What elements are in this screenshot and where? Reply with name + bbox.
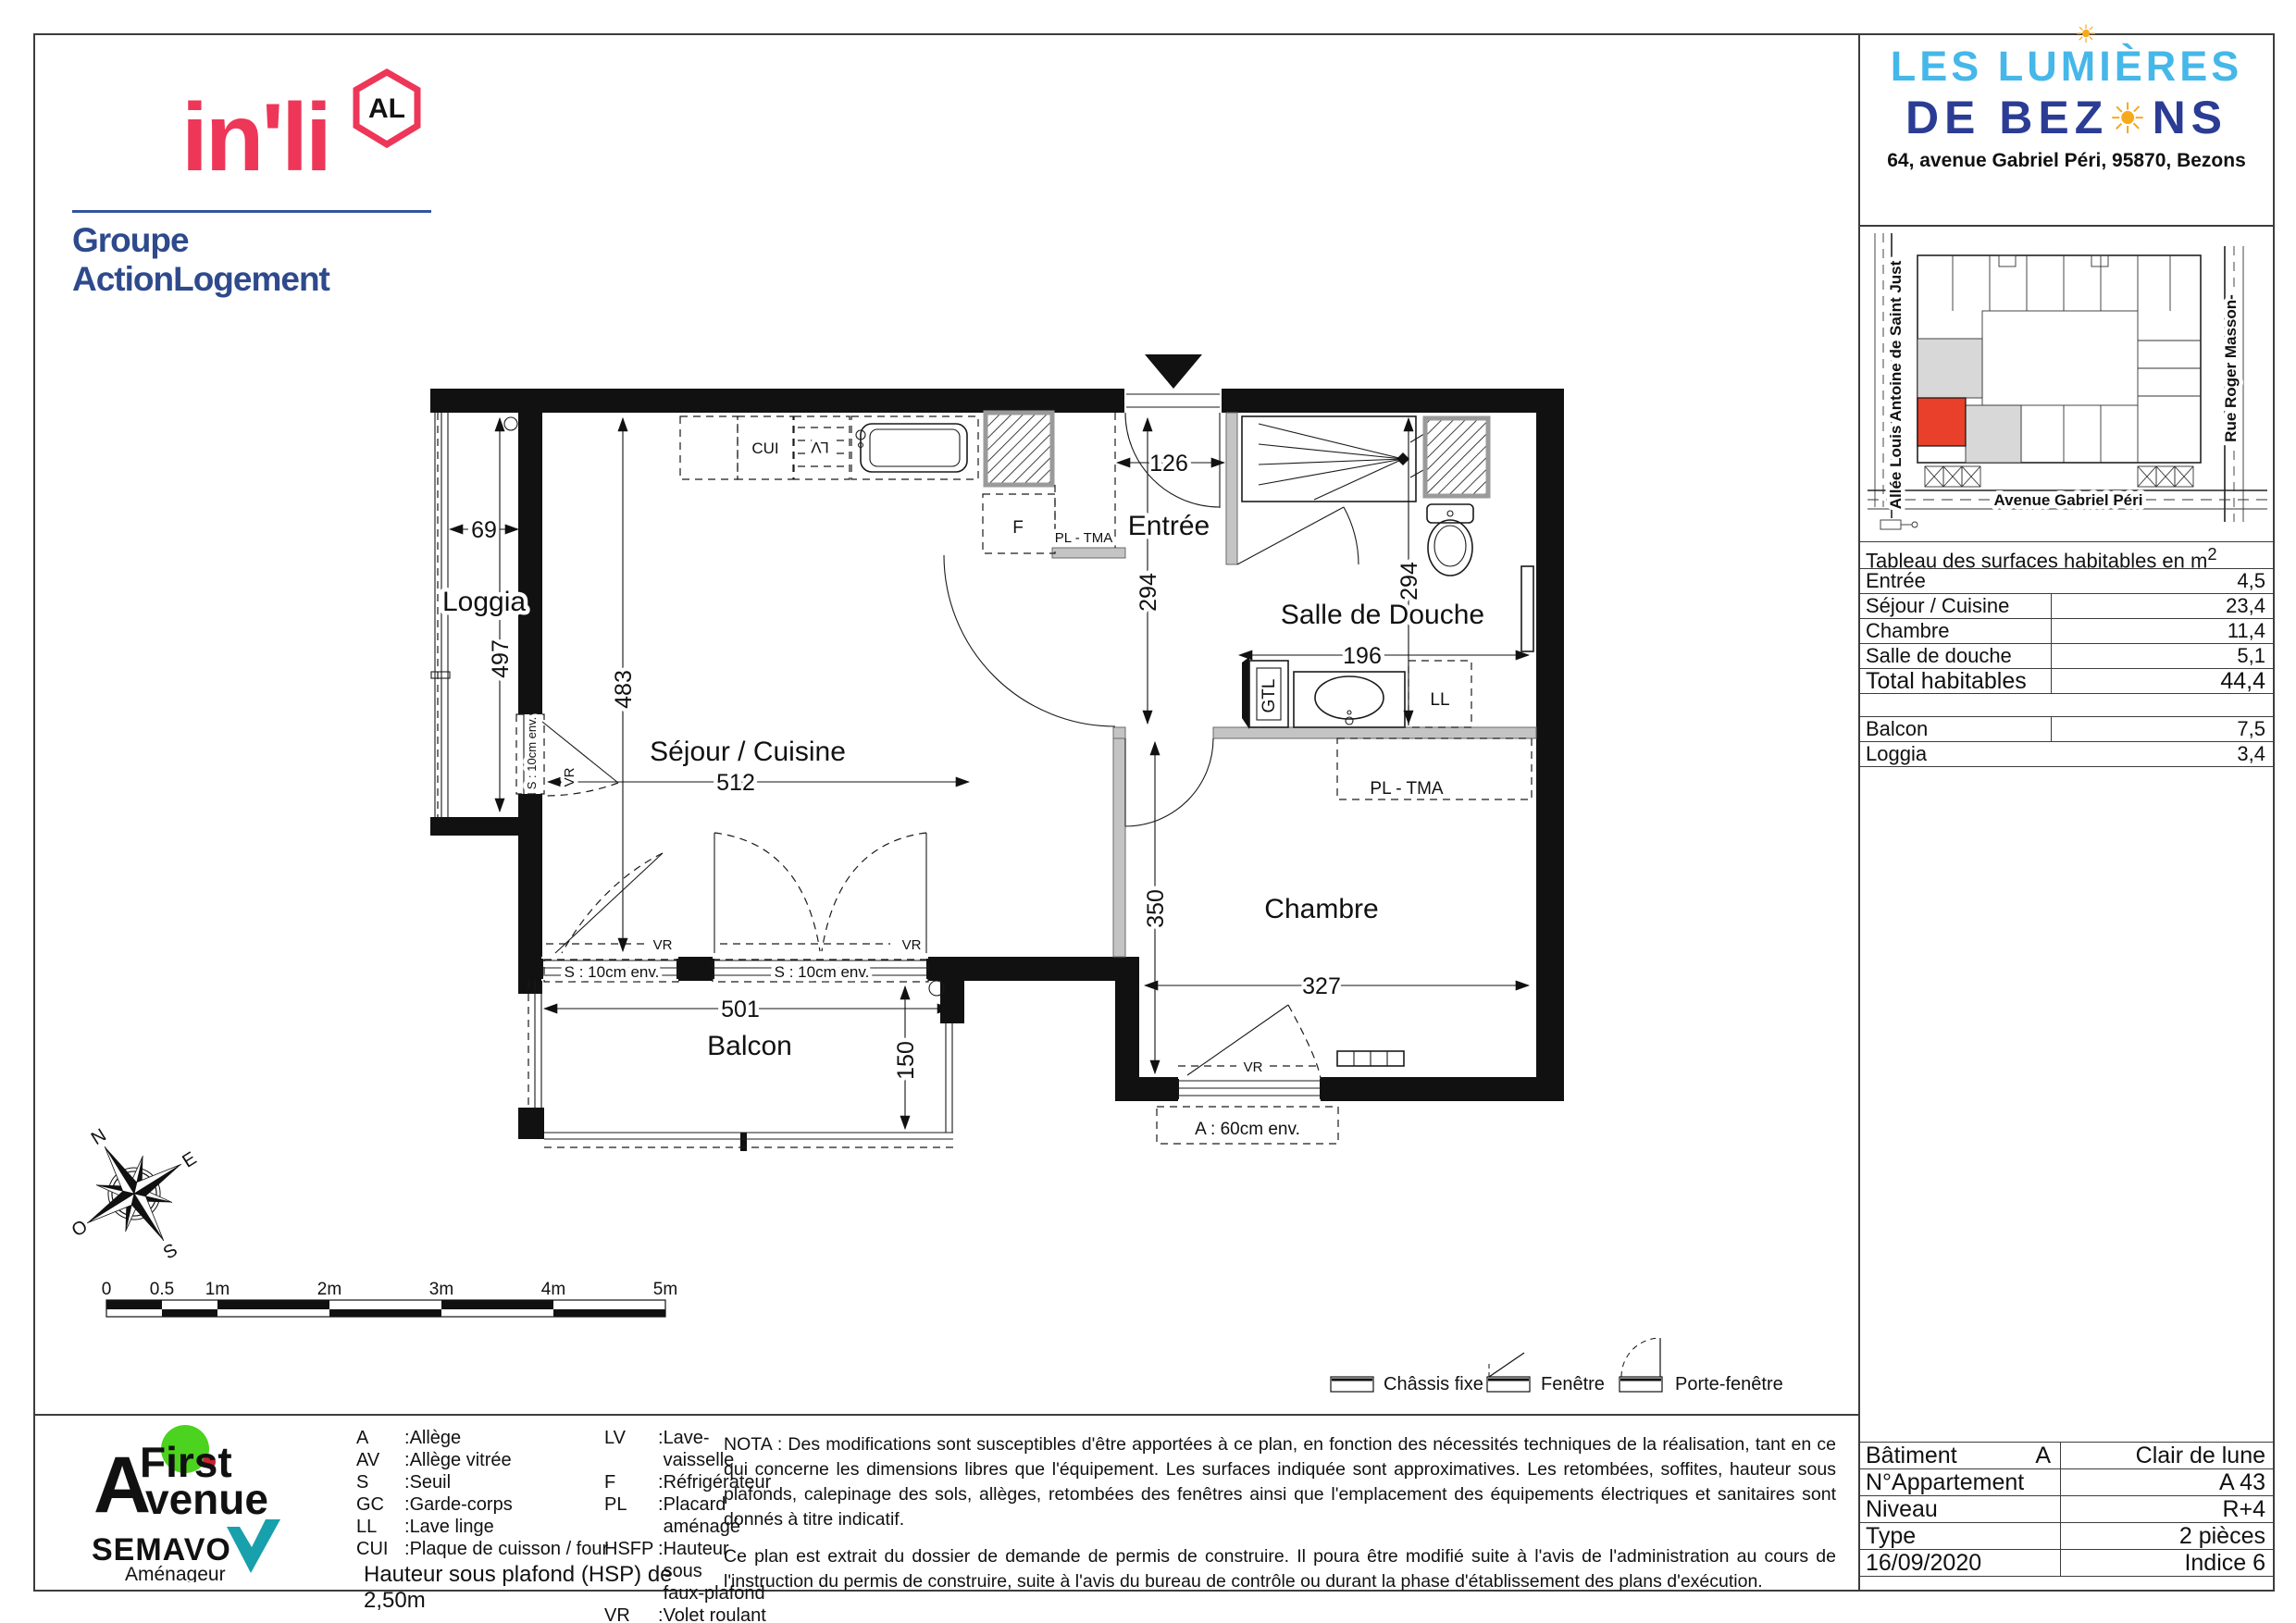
nota-block: NOTA : Des modifications sont susceptibl… bbox=[724, 1432, 1836, 1593]
shower bbox=[1242, 416, 1449, 502]
developer-logos: A First venue SEMAVO Aménageur bbox=[88, 1423, 329, 1582]
chassis-fixe-icon bbox=[1331, 1377, 1373, 1392]
compass-south: S bbox=[160, 1240, 181, 1261]
table-spacer-row bbox=[1860, 694, 2273, 717]
abbr-key: LV bbox=[604, 1427, 658, 1471]
semavo-wordmark: SEMAVO bbox=[92, 1532, 231, 1567]
label-seuil-loggia: S : 10cm env. bbox=[525, 717, 539, 790]
compass-west: O bbox=[68, 1216, 92, 1241]
compass-rose-icon: N E S O bbox=[56, 1127, 213, 1261]
window-legend: Châssis fixe Fenêtre Porte-fenêtre bbox=[1319, 1332, 1837, 1406]
floor-plan: 69 497 483 512 126 294 294 196 350 327 5… bbox=[398, 342, 1601, 1175]
row-value: 4,5 bbox=[2051, 569, 2273, 593]
row-label: Chambre bbox=[1860, 619, 2051, 643]
row-label: Bâtiment bbox=[1866, 1443, 1957, 1469]
table-row: Balcon7,5 bbox=[1860, 717, 2273, 742]
abbr-def: Plaque de cuisson / four bbox=[410, 1538, 609, 1560]
table-row: N°Appartement A 43 bbox=[1860, 1469, 2273, 1496]
scale-tick-label: 0.5 bbox=[150, 1282, 174, 1299]
dim-loggia-height: 497 bbox=[488, 639, 514, 678]
label-seuil-2: S : 10cm env. bbox=[775, 963, 870, 981]
row-label: Type bbox=[1866, 1523, 1916, 1550]
site-hydrant-icon bbox=[1880, 520, 1917, 529]
row-label: Niveau bbox=[1866, 1496, 1938, 1523]
abbr-key: PL bbox=[604, 1493, 658, 1538]
row-label: Total habitables bbox=[1860, 669, 2051, 693]
label-pl-tma-chambre: PL - TMA bbox=[1370, 779, 1444, 799]
project-title-line1: LES LUMIÈRES bbox=[1891, 43, 2243, 90]
abbr-key: A bbox=[356, 1427, 404, 1449]
project-title-line2: DE BEZ☀NS bbox=[1862, 91, 2271, 144]
dim-chambre-width: 327 bbox=[1302, 973, 1341, 999]
abbr-row: CUI: Plaque de cuisson / four bbox=[356, 1538, 608, 1560]
sun-large-icon: ☀ bbox=[2108, 94, 2152, 142]
row-label: N°Appartement bbox=[1866, 1469, 2024, 1496]
site-parking bbox=[1925, 466, 2193, 487]
plan-symbol-circle bbox=[504, 417, 517, 430]
room-label-sejour: Séjour / Cuisine bbox=[650, 737, 846, 767]
inli-logo: in'li AL Groupe ActionLogement bbox=[72, 69, 431, 264]
porte-fenetre-icon bbox=[1620, 1338, 1662, 1392]
washbasin bbox=[1294, 672, 1405, 727]
bathroom-door bbox=[1237, 507, 1359, 564]
label-vr-1: VR bbox=[653, 937, 673, 953]
table-row: Loggia3,4 bbox=[1860, 742, 2273, 767]
abbr-key: CUI bbox=[356, 1538, 404, 1560]
label-vr-2: VR bbox=[902, 937, 922, 953]
row-value: 11,4 bbox=[2051, 619, 2273, 643]
table-row: Séjour / Cuisine23,4 bbox=[1860, 594, 2273, 619]
entrance-door bbox=[1125, 354, 1220, 508]
row-value: Indice 6 bbox=[2060, 1550, 2273, 1576]
label-gtl: GTL bbox=[1260, 679, 1279, 713]
dim-entree-width: 126 bbox=[1149, 451, 1188, 477]
ceiling-height-note: Hauteur sous plafond (HSP) de 2,50m bbox=[364, 1562, 722, 1614]
inli-group-label: Groupe ActionLogement bbox=[72, 221, 431, 299]
fenetre-icon bbox=[1487, 1353, 1530, 1392]
legend-label-chassis: Châssis fixe bbox=[1384, 1374, 1483, 1394]
sejour-entree-door-arc bbox=[944, 555, 1115, 726]
room-label-balcon: Balcon bbox=[707, 1031, 792, 1061]
scale-tick-label: 0 bbox=[102, 1282, 112, 1299]
entrance-arrow-icon bbox=[1145, 354, 1202, 389]
abbr-def: Allège bbox=[410, 1427, 462, 1449]
abbr-key: S bbox=[356, 1471, 404, 1493]
room-label-loggia: Loggia bbox=[442, 587, 526, 617]
dim-balcon-width: 501 bbox=[721, 997, 760, 1022]
row-label: Séjour / Cuisine bbox=[1860, 594, 2051, 618]
scale-tick-label: 2m bbox=[317, 1282, 341, 1299]
kitchen-fittings bbox=[680, 413, 1115, 553]
kitchen-sink bbox=[851, 416, 978, 479]
surface-table: Tableau des surfaces habitables en m2 En… bbox=[1860, 541, 2273, 767]
legend-label-fenetre: Fenêtre bbox=[1541, 1374, 1605, 1394]
dimension-lines: 69 497 483 512 126 294 294 196 350 327 5… bbox=[450, 418, 1529, 1129]
inli-al-hexagon-icon: AL bbox=[352, 68, 422, 149]
row-value: 5,1 bbox=[2051, 644, 2273, 668]
semavo-v-icon bbox=[227, 1519, 280, 1573]
surface-table-title: Tableau des surfaces habitables en m2 bbox=[1860, 542, 2273, 569]
inli-rule bbox=[72, 210, 431, 213]
row-value: R+4 bbox=[2060, 1496, 2273, 1522]
table-row: Chambre11,4 bbox=[1860, 619, 2273, 644]
label-cui: CUI bbox=[751, 440, 778, 457]
row-value: 3,4 bbox=[2051, 742, 2273, 766]
abbr-def: Garde-corps bbox=[410, 1493, 513, 1516]
kitchen-counter bbox=[680, 416, 738, 479]
label-allege: A : 60cm env. bbox=[1195, 1120, 1300, 1139]
project-title-line2b: NS bbox=[2153, 92, 2228, 143]
project-address: 64, avenue Gabriel Péri, 95870, Bezons bbox=[1862, 150, 2271, 172]
row-value: 23,4 bbox=[2051, 594, 2273, 618]
compass-east: E bbox=[179, 1148, 200, 1172]
site-building-outline bbox=[1917, 255, 2201, 463]
label-pl-tma-entree: PL - TMA bbox=[1055, 530, 1113, 546]
radiator-bedroom bbox=[1337, 1051, 1404, 1066]
apartment-info-table: BâtimentA Clair de lune N°Appartement A … bbox=[1860, 1442, 2273, 1577]
label-vr-chambre: VR bbox=[1244, 1059, 1263, 1075]
site-unit-highlight bbox=[1917, 398, 1966, 446]
duct-shaft-2 bbox=[1425, 418, 1488, 496]
street-label-right: Rue Roger Masson- bbox=[2222, 294, 2240, 442]
legend-label-porte-fenetre: Porte-fenêtre bbox=[1675, 1374, 1783, 1394]
abbr-key: LL bbox=[356, 1516, 404, 1538]
first-avenue-venue: venue bbox=[145, 1475, 268, 1523]
dim-loggia-width: 69 bbox=[471, 517, 497, 543]
radiator-bathroom bbox=[1521, 566, 1533, 651]
scale-tick-label: 5m bbox=[653, 1282, 677, 1299]
dim-sejour-width: 512 bbox=[716, 770, 755, 796]
label-fridge: F bbox=[1012, 518, 1024, 538]
logo-block-divider bbox=[1860, 225, 2273, 227]
row-label: Balcon bbox=[1860, 717, 2051, 741]
sun-small-icon: ☀ bbox=[2075, 20, 2097, 49]
row-label: Loggia bbox=[1860, 742, 2051, 766]
abbreviation-legend: A: Allège AV: Allège vitrée S: Seuil GC:… bbox=[356, 1427, 722, 1590]
table-row: BâtimentA Clair de lune bbox=[1860, 1443, 2273, 1469]
label-vr-loggia: VR bbox=[562, 767, 577, 787]
site-map: Allée Louis Antoine de Saint Just Rue Ro… bbox=[1860, 229, 2273, 540]
abbr-row: LL: Lave linge bbox=[356, 1516, 608, 1538]
site-unit-gray-1 bbox=[1917, 339, 1982, 398]
label-lv: LV bbox=[811, 439, 829, 456]
room-label-chambre: Chambre bbox=[1264, 894, 1378, 924]
row-label2: A bbox=[2035, 1443, 2051, 1469]
table-row: Entrée4,5 bbox=[1860, 569, 2273, 594]
dim-balcon-depth: 150 bbox=[893, 1041, 919, 1080]
row-value: Clair de lune bbox=[2060, 1443, 2273, 1468]
project-logo: LES LUMIÈRES ☀ DE BEZ☀NS 64, avenue Gabr… bbox=[1862, 43, 2271, 172]
duct-shaft bbox=[986, 413, 1052, 485]
room-label-entree: Entrée bbox=[1128, 511, 1210, 541]
table-row: Type 2 pièces bbox=[1860, 1523, 2273, 1550]
row-label: 16/09/2020 bbox=[1866, 1550, 1981, 1577]
abbr-row: A: Allège bbox=[356, 1427, 608, 1449]
street-label-bottom: Avenue Gabriel Péri bbox=[1994, 491, 2143, 509]
plan-sheet: in'li AL Groupe ActionLogement LES LUMIÈ… bbox=[0, 0, 2296, 1623]
room-label-sdb: Salle de Douche bbox=[1281, 600, 1484, 630]
table-row: Salle de douche5,1 bbox=[1860, 644, 2273, 669]
scale-tick-label: 3m bbox=[429, 1282, 453, 1299]
abbr-def: Seuil bbox=[410, 1471, 451, 1493]
dim-sejour-height: 483 bbox=[611, 670, 637, 709]
abbr-key: GC bbox=[356, 1493, 404, 1516]
scale-tick-label: 1m bbox=[205, 1282, 230, 1299]
abbr-def: Lave linge bbox=[410, 1516, 494, 1538]
nota-paragraph-2: Ce plan est extrait du dossier de demand… bbox=[724, 1544, 1836, 1594]
table-row-total: Total habitables44,4 bbox=[1860, 669, 2273, 694]
nota-paragraph-1: NOTA : Des modifications sont susceptibl… bbox=[724, 1432, 1836, 1532]
abbr-row: S: Seuil bbox=[356, 1471, 608, 1493]
row-value: 44,4 bbox=[2051, 669, 2273, 693]
dim-sdb-width: 196 bbox=[1343, 643, 1382, 669]
bottom-band-divider bbox=[33, 1414, 1858, 1416]
site-unit-gray-2 bbox=[1966, 405, 2021, 463]
abbr-def: Allège vitrée bbox=[410, 1449, 512, 1471]
table-row: Niveau R+4 bbox=[1860, 1496, 2273, 1523]
project-title-line2a: DE BEZ bbox=[1905, 92, 2108, 143]
scale-tick-label: 4m bbox=[541, 1282, 565, 1299]
inli-badge-text: AL bbox=[368, 93, 405, 124]
dim-chambre-height: 350 bbox=[1143, 889, 1169, 928]
structural-walls bbox=[430, 389, 1564, 1151]
row-value: A 43 bbox=[2060, 1469, 2273, 1495]
dim-sdb-height: 294 bbox=[1396, 562, 1422, 601]
table-row: 16/09/2020 Indice 6 bbox=[1860, 1550, 2273, 1577]
abbr-row: AV: Allège vitrée bbox=[356, 1449, 608, 1471]
row-label: Entrée bbox=[1860, 569, 2051, 593]
compass-north: N bbox=[88, 1127, 110, 1149]
dim-entree-height: 294 bbox=[1136, 573, 1161, 612]
scale-bar: 0 0.5 1m 2m 3m 4m 5m bbox=[93, 1282, 685, 1332]
sejour-window-2 bbox=[711, 833, 930, 982]
first-avenue-logo: A First venue bbox=[93, 1425, 268, 1530]
surface-table-title-sup: 2 bbox=[2207, 544, 2216, 564]
abbr-key: F bbox=[604, 1471, 658, 1493]
street-label-left: Allée Louis Antoine de Saint Just bbox=[1887, 260, 1905, 509]
abbr-key: AV bbox=[356, 1449, 404, 1471]
semavo-subtitle: Aménageur bbox=[125, 1564, 226, 1582]
label-ll: LL bbox=[1430, 690, 1449, 710]
row-value: 2 pièces bbox=[2060, 1523, 2273, 1549]
row-value: 7,5 bbox=[2051, 717, 2273, 741]
label-seuil-1: S : 10cm env. bbox=[565, 963, 660, 981]
bedroom-door bbox=[1125, 738, 1213, 826]
abbr-row: GC: Garde-corps bbox=[356, 1493, 608, 1516]
inli-wordmark: in'li bbox=[181, 90, 329, 186]
row-label: Salle de douche bbox=[1860, 644, 2051, 668]
toilet bbox=[1427, 504, 1473, 576]
